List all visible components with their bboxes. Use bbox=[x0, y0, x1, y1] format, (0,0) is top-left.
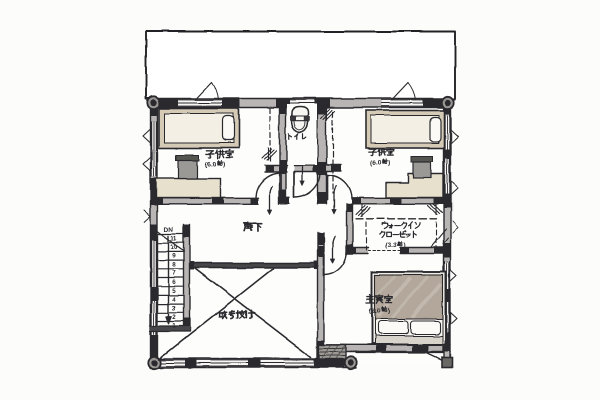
svg-text:10: 10 bbox=[171, 244, 178, 251]
svg-text:(8.0: (8.0 bbox=[369, 308, 381, 315]
svg-text:4: 4 bbox=[172, 296, 176, 303]
svg-text:9: 9 bbox=[172, 253, 176, 260]
svg-text:): ) bbox=[388, 308, 390, 315]
svg-text:(6.0: (6.0 bbox=[205, 161, 217, 168]
svg-text:5: 5 bbox=[172, 288, 176, 295]
svg-text:3: 3 bbox=[172, 305, 176, 312]
svg-text:7: 7 bbox=[172, 270, 176, 277]
svg-text:2: 2 bbox=[172, 314, 176, 321]
svg-text:DN: DN bbox=[164, 227, 174, 234]
svg-text:11: 11 bbox=[171, 235, 178, 242]
svg-text:1: 1 bbox=[172, 322, 176, 329]
svg-text:(3.3: (3.3 bbox=[386, 242, 397, 249]
svg-text:): ) bbox=[389, 160, 391, 167]
svg-text:6: 6 bbox=[172, 279, 176, 286]
svg-text:): ) bbox=[224, 161, 226, 168]
svg-text:8: 8 bbox=[172, 261, 176, 268]
svg-text:(6.0: (6.0 bbox=[370, 160, 382, 167]
svg-text:): ) bbox=[404, 242, 406, 249]
